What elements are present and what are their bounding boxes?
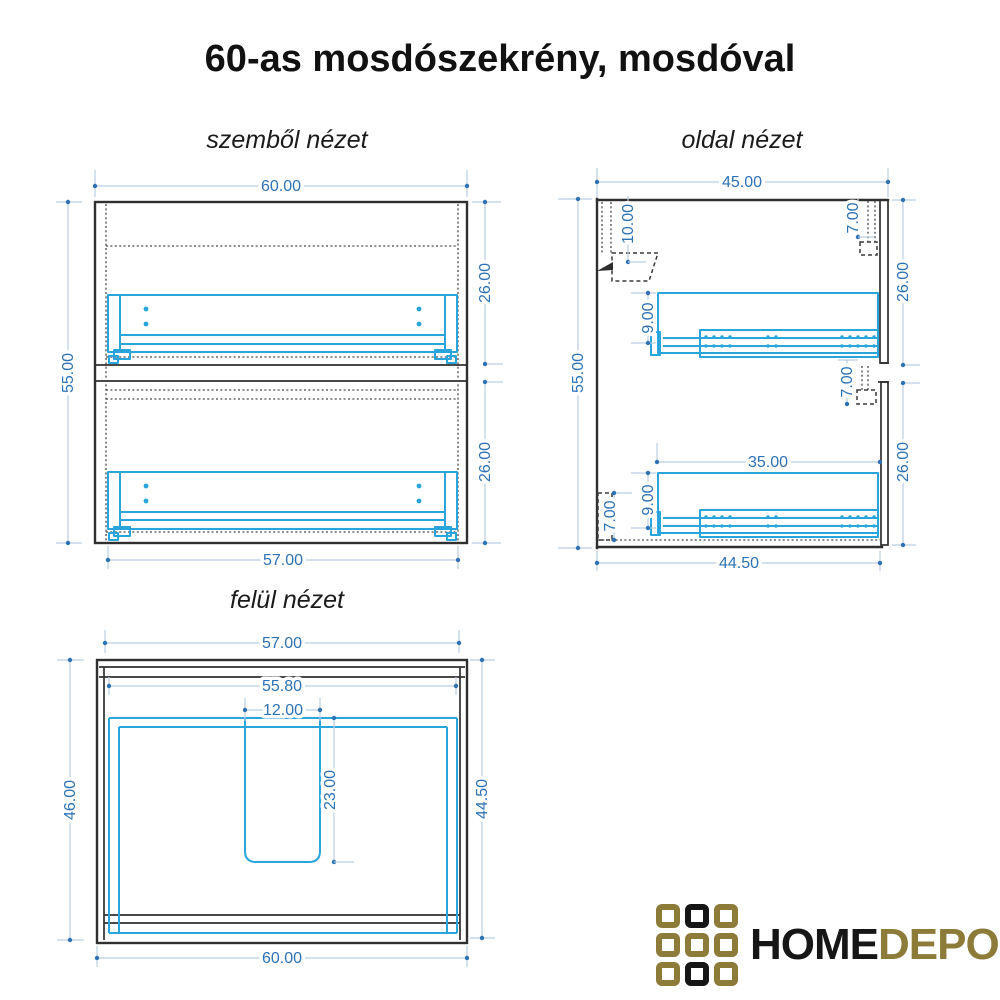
dim-top-width-top: 57.00 bbox=[262, 635, 302, 652]
side-view-label: oldal nézet bbox=[582, 126, 902, 155]
dim-front-width-bottom: 57.00 bbox=[263, 552, 303, 569]
top-view-drawing: 57.00 55.80 12.00 46.00 23.00 44.50 60.0… bbox=[30, 620, 520, 990]
dim-side-upper-drawer: 26.00 bbox=[895, 262, 912, 302]
front-view-drawing: 60.00 55.00 26.00 26.00 57.00 bbox=[40, 160, 520, 580]
logo-grid-cell-gold bbox=[714, 962, 738, 986]
front-view-label: szemből nézet bbox=[127, 126, 447, 155]
logo-grid-icon bbox=[656, 904, 738, 986]
logo-grid-cell-gold bbox=[714, 933, 738, 957]
top-drawer-outline bbox=[109, 718, 457, 933]
dim-side-lower-rail-height: 9.00 bbox=[640, 484, 657, 515]
side-upper-drawer-rail bbox=[651, 293, 878, 357]
front-cabinet-outline bbox=[95, 202, 467, 543]
dim-side-depth-bottom: 44.50 bbox=[719, 555, 759, 572]
dim-front-width-top: 60.00 bbox=[261, 178, 301, 195]
dim-side-mid-inset: 7.00 bbox=[839, 366, 856, 397]
top-dimensions: 57.00 55.80 12.00 46.00 23.00 44.50 60.0… bbox=[57, 630, 495, 967]
logo-grid-cell-gold bbox=[656, 962, 680, 986]
front-upper-drawer-box bbox=[108, 295, 457, 363]
dim-side-height-left: 55.00 bbox=[570, 353, 587, 393]
dim-side-rail-length: 35.00 bbox=[748, 454, 788, 471]
dim-front-lower-drawer: 26.00 bbox=[477, 442, 494, 482]
dim-top-width-bottom: 60.00 bbox=[262, 950, 302, 967]
page-title: 60-as mosdószekrény, mosdóval bbox=[0, 38, 1000, 81]
dim-top-inner-width: 55.80 bbox=[262, 678, 302, 695]
dim-front-upper-drawer: 26.00 bbox=[477, 263, 494, 303]
dim-front-height-left: 55.00 bbox=[60, 353, 77, 393]
side-dimensions: 45.00 55.00 7.00 26.00 7.00 26.00 10.00 bbox=[558, 168, 920, 572]
dim-side-top-inset: 7.00 bbox=[845, 202, 862, 233]
dim-top-depth-right: 44.50 bbox=[474, 779, 491, 819]
logo-grid-cell-black bbox=[685, 904, 709, 928]
dim-top-cutout-width: 12.00 bbox=[263, 702, 303, 719]
dim-side-depth-top: 45.00 bbox=[722, 174, 762, 191]
dim-side-upper-rail-height: 9.00 bbox=[640, 302, 657, 333]
front-dimensions: 60.00 55.00 26.00 26.00 57.00 bbox=[56, 170, 503, 569]
dim-top-cutout-depth: 23.00 bbox=[322, 770, 339, 810]
side-view-drawing: 45.00 55.00 7.00 26.00 7.00 26.00 10.00 bbox=[545, 160, 935, 580]
logo-grid-cell-gold bbox=[685, 933, 709, 957]
dim-side-bracket-depth: 10.00 bbox=[620, 204, 637, 244]
sink-cutout bbox=[245, 718, 320, 862]
logo-text-home: HOME bbox=[750, 920, 878, 969]
dim-top-depth-left: 46.00 bbox=[62, 780, 79, 820]
front-lower-drawer-box bbox=[108, 472, 457, 540]
dim-side-bottom-inset: 7.00 bbox=[602, 500, 619, 531]
logo-grid-cell-gold bbox=[656, 904, 680, 928]
logo-grid-cell-gold bbox=[714, 904, 738, 928]
top-view-label: felül nézet bbox=[127, 586, 447, 615]
logo-grid-cell-gold bbox=[656, 933, 680, 957]
logo-grid-cell-black bbox=[685, 962, 709, 986]
homedepo-logo: HOMEDEPO bbox=[656, 904, 999, 986]
logo-wordmark: HOMEDEPO bbox=[750, 920, 999, 970]
side-lower-drawer-rail bbox=[651, 473, 878, 537]
dim-side-lower-drawer: 26.00 bbox=[895, 442, 912, 482]
logo-text-depo: DEPO bbox=[878, 920, 999, 969]
